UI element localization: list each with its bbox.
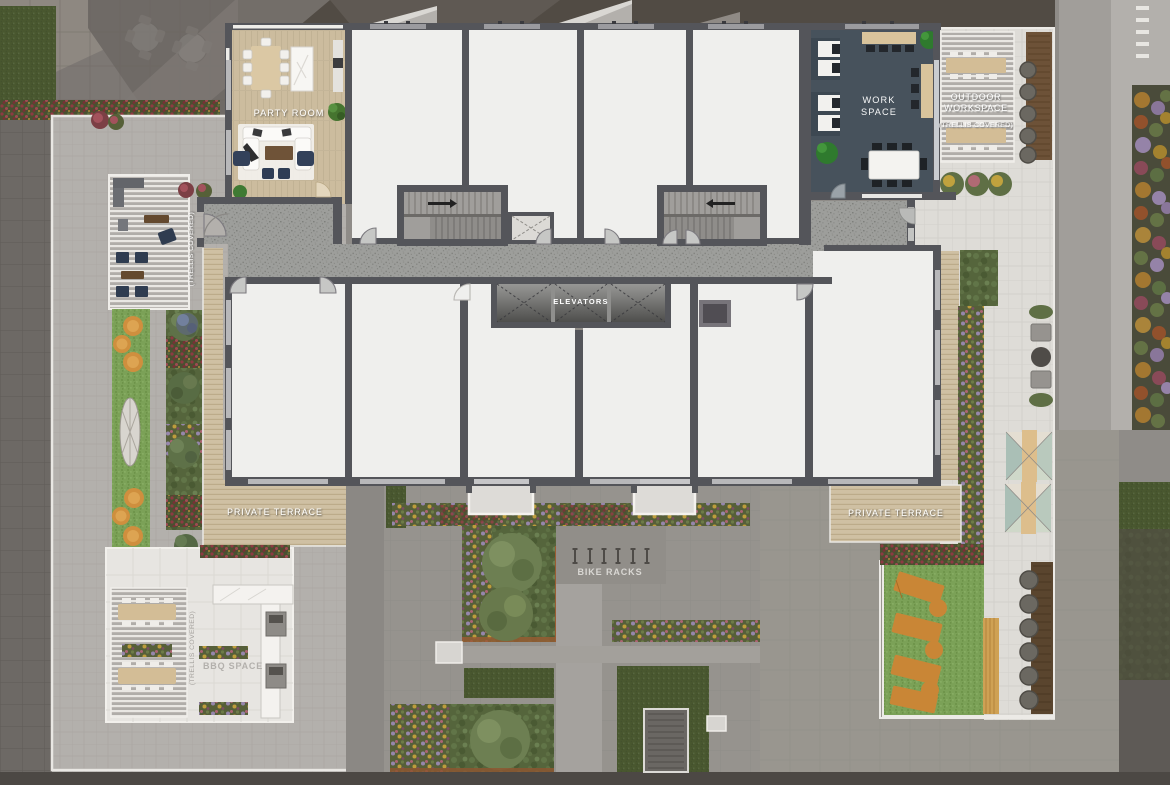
svg-text:PARTY ROOM: PARTY ROOM bbox=[254, 108, 325, 118]
svg-text:(TRELLIS COVERED): (TRELLIS COVERED) bbox=[939, 122, 1013, 129]
svg-text:(TRELLIS COVERED): (TRELLIS COVERED) bbox=[189, 611, 196, 685]
svg-text:PRIVATE TERRACE: PRIVATE TERRACE bbox=[848, 508, 944, 518]
svg-text:PRIVATE TERRACE: PRIVATE TERRACE bbox=[227, 507, 323, 517]
svg-text:BBQ SPACE: BBQ SPACE bbox=[203, 661, 263, 671]
svg-text:WORK: WORK bbox=[863, 95, 896, 105]
svg-text:WORKSPACE: WORKSPACE bbox=[944, 103, 1008, 113]
svg-text:OUTDOOR: OUTDOOR bbox=[951, 92, 1002, 102]
svg-text:BIKE RACKS: BIKE RACKS bbox=[577, 567, 642, 577]
svg-text:(TRELLIS COVERED): (TRELLIS COVERED) bbox=[188, 212, 195, 286]
svg-text:SPACE: SPACE bbox=[861, 107, 897, 117]
svg-text:ELEVATORS: ELEVATORS bbox=[553, 297, 608, 306]
